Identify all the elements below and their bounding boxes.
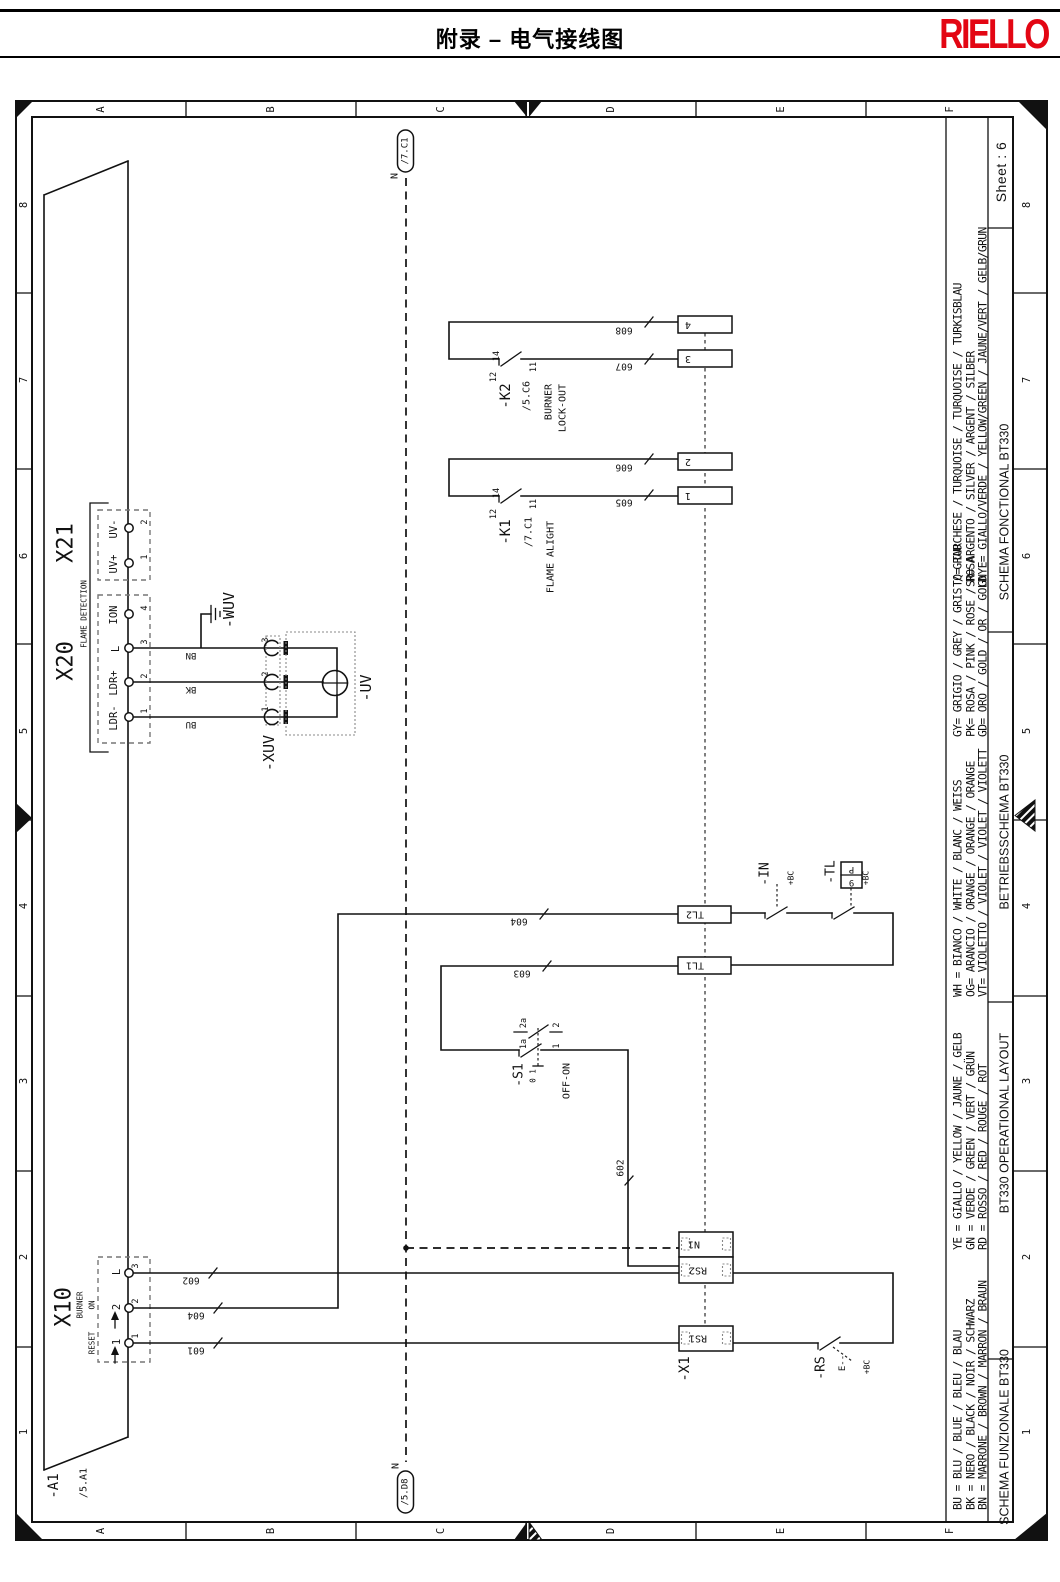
x10-pin-2: 2	[131, 1298, 141, 1303]
uv-ref: -UV	[357, 674, 375, 701]
n1-box-label: N1	[688, 1239, 700, 1250]
s1-pin-1a: 1a	[519, 1039, 529, 1049]
k1-pin-14: 14	[492, 488, 502, 498]
x10-burner: BURNER	[76, 1291, 85, 1319]
k2-pin-14: 14	[492, 351, 502, 361]
x10-1-label: 1	[111, 1339, 123, 1345]
terminal-2: 2	[685, 456, 691, 467]
wire-607: 607	[615, 361, 632, 372]
wire-608: 608	[615, 325, 632, 336]
legend-title-1: BETRIEBSSCHEMA BT330	[998, 754, 1012, 909]
legend-line-3-2: RD = ROSSO / RED / ROUGE / ROT	[977, 1063, 990, 1250]
terminal-4: 4	[685, 319, 691, 330]
x20-ldr-plus: LDR+	[108, 670, 120, 695]
k1-ref: -K1	[498, 519, 514, 544]
wire-604: 604	[510, 916, 527, 927]
x20-label: X20	[54, 641, 79, 681]
terminal-1: 1	[685, 490, 691, 501]
x10-reset: RESET	[88, 1331, 97, 1354]
legend-title-2: BT330 OPERATIONAL LAYOUT	[998, 1032, 1012, 1213]
in-ref: -IN	[758, 862, 773, 885]
grid-col-A-top: A	[95, 106, 107, 113]
wires	[111, 317, 893, 1363]
k2-func-line1: BURNER	[544, 383, 555, 420]
xuv-pin-3: 3	[261, 637, 271, 642]
legend-line-0-0: TQ= TURCHESE / TURQUOISE / TURQUOISE / T…	[952, 283, 965, 587]
grid-row-1-left: 1	[18, 1429, 30, 1435]
s1-pin-1: 1	[552, 1043, 562, 1048]
grid-row-8-left: 8	[18, 202, 30, 208]
rs2-box-label: RS2	[689, 1265, 707, 1276]
s1-func: OFF-ON	[562, 1063, 573, 1099]
x1-ref: -X1	[677, 1356, 693, 1381]
wire-601: 601	[187, 1345, 204, 1356]
legend-title-0: SCHEMA FONCTIONAL BT330	[998, 424, 1012, 601]
flame-detection-label: FLAME DETECTION	[80, 580, 89, 648]
x10-pin-1: 1	[131, 1333, 141, 1338]
grid-col-E-top: E	[775, 106, 787, 112]
tl-9p-9: 9	[849, 877, 854, 887]
labels-layer: -A1/5.A1X21X20FLAME DETECTIONUV-UV+IONLL…	[18, 106, 1033, 1535]
legend-line-1-2: GD= ORO / GOLD / OR / GOLD	[977, 575, 990, 737]
x20-pin-2: 2	[140, 673, 150, 678]
xuv-pin-2: 2	[261, 671, 271, 676]
rs1-box-label: RS1	[689, 1333, 707, 1344]
n-top-xref: /7.C1	[401, 137, 411, 164]
x10-label: X10	[52, 1287, 77, 1327]
k1-xref: /7.C1	[524, 517, 535, 547]
wire-color-bn: BN	[186, 650, 197, 660]
page: 附录 – 电气接线图 RIELLO	[0, 0, 1060, 1582]
grid-row-3-left: 3	[18, 1078, 30, 1084]
grid-row-4-left: 4	[18, 903, 30, 909]
s1-positions: 0 1	[529, 1069, 538, 1083]
x10-on: ON	[88, 1300, 97, 1309]
grid-col-C-bottom: C	[435, 1528, 447, 1534]
x21-label: X21	[54, 523, 79, 563]
wire-color-bu: BU	[186, 719, 197, 729]
legend-line-2-2: VT= VIOLETTO / VIOLET / VIOLET / VIOLETT	[977, 748, 990, 997]
grid-row-5-right: 5	[1021, 728, 1033, 734]
x21-uv-plus: UV+	[108, 555, 120, 574]
a1-ref: -A1	[46, 1473, 62, 1498]
in-bc: +BC	[787, 871, 796, 886]
x20-pin-4: 4	[140, 605, 150, 610]
grid-row-5-left: 5	[18, 728, 30, 734]
legend-title-3: SCHEMA FUNZIONALE BT330	[998, 1349, 1012, 1525]
k1-pin-12: 12	[489, 509, 499, 519]
grid-row-8-right: 8	[1021, 202, 1033, 208]
wire-604-b: 604	[187, 1310, 204, 1321]
rs-e: E--	[838, 1355, 848, 1371]
legend-line-1-0: GY= GRIGIO / GREY / GRIS / GRAU	[952, 545, 965, 737]
n-bottom-xref: /5.D8	[401, 1478, 411, 1505]
x10-pin-3: 3	[131, 1263, 141, 1268]
n-top-label: N	[390, 173, 401, 179]
legend-line-3-0: YE = GIALLO / YELLOW / JAUNE / GELB	[952, 1032, 965, 1250]
legend-line-4-0: BU = BLU / BLUE / BLEU / BLAU	[952, 1330, 965, 1510]
grid-col-B-bottom: B	[265, 1528, 277, 1534]
k1-pin-11: 11	[529, 499, 539, 509]
xuv-pin-1: 1	[261, 706, 271, 711]
schematic-canvas: -A1/5.A1X21X20FLAME DETECTIONUV-UV+IONLL…	[0, 0, 1060, 1582]
k2-ref: -K2	[498, 383, 514, 408]
s1-pin-2: 2	[552, 1022, 562, 1027]
legend-line-0-2: GNYE= GIALLO/VERDE / YELLOW/GREEN / JAUN…	[977, 227, 990, 587]
n-bottom-label: N	[391, 1463, 402, 1469]
x20-pin-3: 3	[140, 639, 150, 644]
wire-605: 605	[615, 497, 632, 508]
x20-ldr-minus: LDR-	[108, 705, 120, 730]
grid-row-6-left: 6	[18, 553, 30, 559]
grid-row-4-right: 4	[1021, 903, 1033, 909]
grid-col-D-bottom: D	[605, 1528, 617, 1534]
x20-l: L	[110, 646, 122, 652]
connector-group-bracket	[90, 503, 108, 752]
tl1-box-label: TL1	[686, 960, 704, 971]
x20-ion: ION	[108, 606, 120, 625]
x20-pin-1: 1	[140, 708, 150, 713]
grid-row-3-right: 3	[1021, 1078, 1033, 1084]
k1-func: FLAME ALIGHT	[546, 521, 557, 593]
x10-l-label: L	[111, 1269, 123, 1275]
wire-color-bk: BK	[185, 684, 196, 694]
grid-col-A-bottom: A	[95, 1527, 107, 1534]
a1-xref: /5.A1	[79, 1468, 90, 1498]
xuv-ref: -XUV	[260, 735, 278, 771]
wuv-ref: -WUV	[220, 592, 238, 628]
grid-row-6-right: 6	[1021, 553, 1033, 559]
grid-col-F-bottom: F	[944, 1528, 956, 1534]
k2-pin-11: 11	[529, 362, 539, 372]
grid-col-C-top: C	[435, 106, 447, 112]
grid-col-D-top: D	[605, 106, 617, 112]
tl-ref: -TL	[824, 860, 839, 884]
x10-2-label: 2	[111, 1304, 123, 1310]
s1-ref: -S1	[512, 1063, 527, 1086]
neutral-line	[403, 178, 679, 1462]
s1-pin-2a: 2a	[519, 1018, 529, 1028]
x20-connector-box	[98, 595, 150, 743]
x21-pin-1: 1	[140, 554, 150, 559]
wire-603: 603	[513, 968, 530, 979]
terminal-3: 3	[685, 353, 691, 364]
wire-602-vertical: 602	[616, 1159, 627, 1176]
legend-line-4-2: BN = MARRONE / BROWN / MARRON / BRAUN	[977, 1280, 990, 1510]
rs-bc: +BC	[863, 1360, 872, 1375]
grid-row-7-right: 7	[1021, 377, 1033, 383]
sheet-number: Sheet : 6	[993, 142, 1009, 203]
tl-9p-p: P	[848, 864, 854, 874]
legend-line-2-0: WH = BIANCO / WHITE / BLANC / WEISS	[952, 779, 965, 997]
tl-bc: +BC	[862, 871, 871, 886]
grid-col-F-top: F	[944, 106, 956, 112]
tl2-box-label: TL2	[686, 909, 704, 920]
rs-ref: -RS	[814, 1356, 829, 1379]
k2-func-line2: LOCK-OUT	[558, 384, 569, 432]
grid-col-B-top: B	[265, 106, 277, 112]
grid-row-2-right: 2	[1021, 1254, 1033, 1260]
grid-row-7-left: 7	[18, 377, 30, 383]
grid-row-1-right: 1	[1021, 1429, 1033, 1435]
wire-606: 606	[615, 462, 632, 473]
pin-circles	[125, 524, 133, 1347]
grid-col-E-bottom: E	[775, 1528, 787, 1534]
x21-pin-2: 2	[140, 519, 150, 524]
grid-row-2-left: 2	[18, 1254, 30, 1260]
x21-uv-minus: UV-	[108, 520, 120, 539]
wire-602: 602	[182, 1275, 199, 1286]
k2-pin-12: 12	[489, 372, 499, 382]
k2-xref: /5.C6	[522, 381, 533, 411]
